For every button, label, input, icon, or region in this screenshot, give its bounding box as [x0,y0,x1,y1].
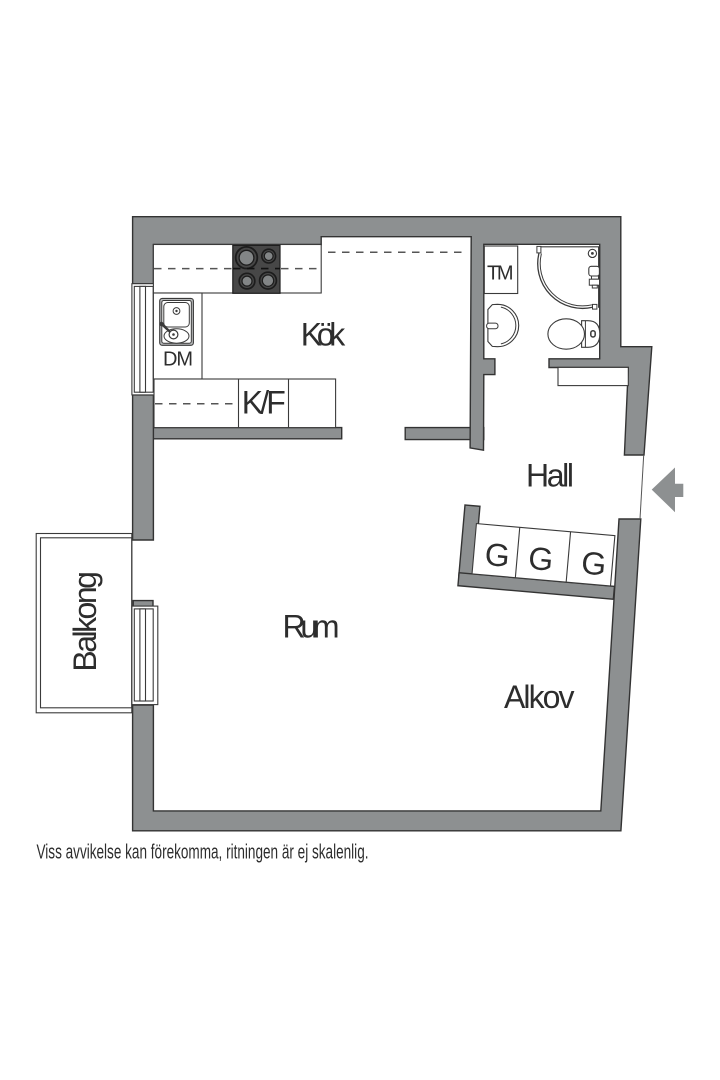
svg-text:Balkong: Balkong [67,571,103,672]
svg-text:DM: DM [163,349,193,371]
svg-text:Alkov: Alkov [504,679,575,715]
svg-text:K/F: K/F [242,385,286,421]
svg-text:G: G [580,544,608,582]
svg-text:Hall: Hall [526,458,574,494]
svg-text:Viss avvikelse kan förekomma,: Viss avvikelse kan förekomma, ritningen … [37,842,369,864]
svg-text:Rum: Rum [283,609,340,645]
svg-text:G: G [527,540,555,578]
svg-text:G: G [483,536,511,574]
svg-text:Kök: Kök [301,317,347,353]
svg-text:TM: TM [487,262,514,284]
